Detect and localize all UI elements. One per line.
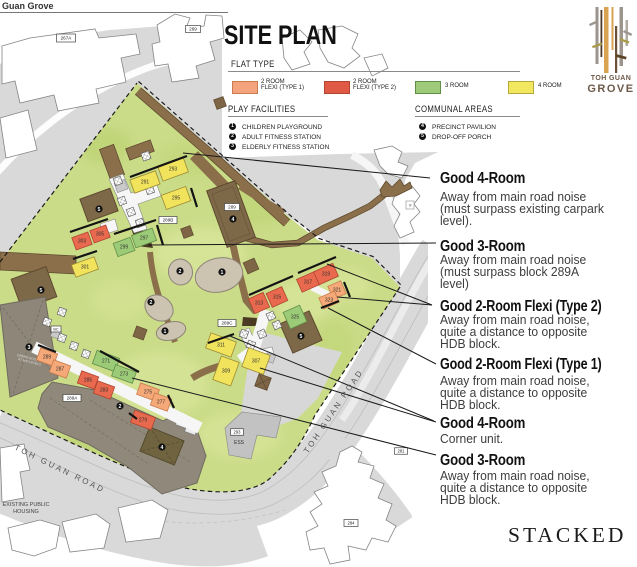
svg-text:3: 3 [28, 345, 31, 351]
svg-text:293: 293 [169, 167, 178, 173]
svg-text:ESS: ESS [234, 440, 245, 446]
svg-text:297: 297 [140, 236, 149, 242]
svg-text:285: 285 [84, 378, 93, 384]
svg-text:293: 293 [234, 430, 242, 435]
svg-text:275: 275 [144, 390, 153, 396]
svg-text:281: 281 [398, 449, 406, 454]
svg-text:289B: 289B [163, 218, 174, 223]
svg-text:267A: 267A [61, 36, 73, 41]
svg-text:2: 2 [179, 269, 182, 275]
svg-text:284: 284 [348, 521, 356, 526]
svg-text:299: 299 [120, 245, 129, 251]
svg-text:289A: 289A [67, 396, 79, 401]
svg-text:319: 319 [322, 272, 331, 278]
svg-text:273: 273 [120, 372, 129, 378]
svg-text:315: 315 [273, 295, 282, 301]
svg-text:295: 295 [172, 196, 181, 202]
svg-text:BC: BC [53, 328, 59, 332]
svg-text:283: 283 [100, 388, 109, 394]
svg-text:291: 291 [141, 180, 150, 186]
svg-text:301: 301 [81, 265, 90, 271]
svg-text:313: 313 [255, 301, 264, 307]
svg-text:325: 325 [291, 315, 300, 321]
svg-text:287: 287 [56, 367, 65, 373]
svg-text:309: 309 [222, 369, 231, 375]
svg-text:279: 279 [139, 418, 148, 424]
svg-text:5: 5 [98, 207, 101, 213]
svg-text:269: 269 [189, 27, 197, 32]
svg-text:303: 303 [78, 239, 87, 245]
svg-text:1: 1 [164, 329, 167, 335]
svg-text:4: 4 [232, 217, 235, 223]
svg-text:289C: 289C [222, 321, 234, 326]
svg-text:277: 277 [157, 400, 166, 406]
svg-text:289: 289 [43, 355, 52, 361]
svg-text:271: 271 [102, 359, 111, 365]
svg-text:317: 317 [304, 280, 313, 286]
svg-text:2: 2 [150, 300, 153, 306]
svg-text:311: 311 [217, 343, 225, 349]
svg-text:2: 2 [119, 404, 122, 410]
svg-text:1: 1 [221, 270, 224, 276]
svg-text:307: 307 [252, 359, 261, 365]
svg-text:5: 5 [300, 334, 303, 340]
svg-text:305: 305 [96, 232, 105, 238]
svg-text:289: 289 [228, 205, 236, 210]
svg-text:4: 4 [161, 445, 164, 451]
svg-text:5: 5 [40, 288, 43, 294]
